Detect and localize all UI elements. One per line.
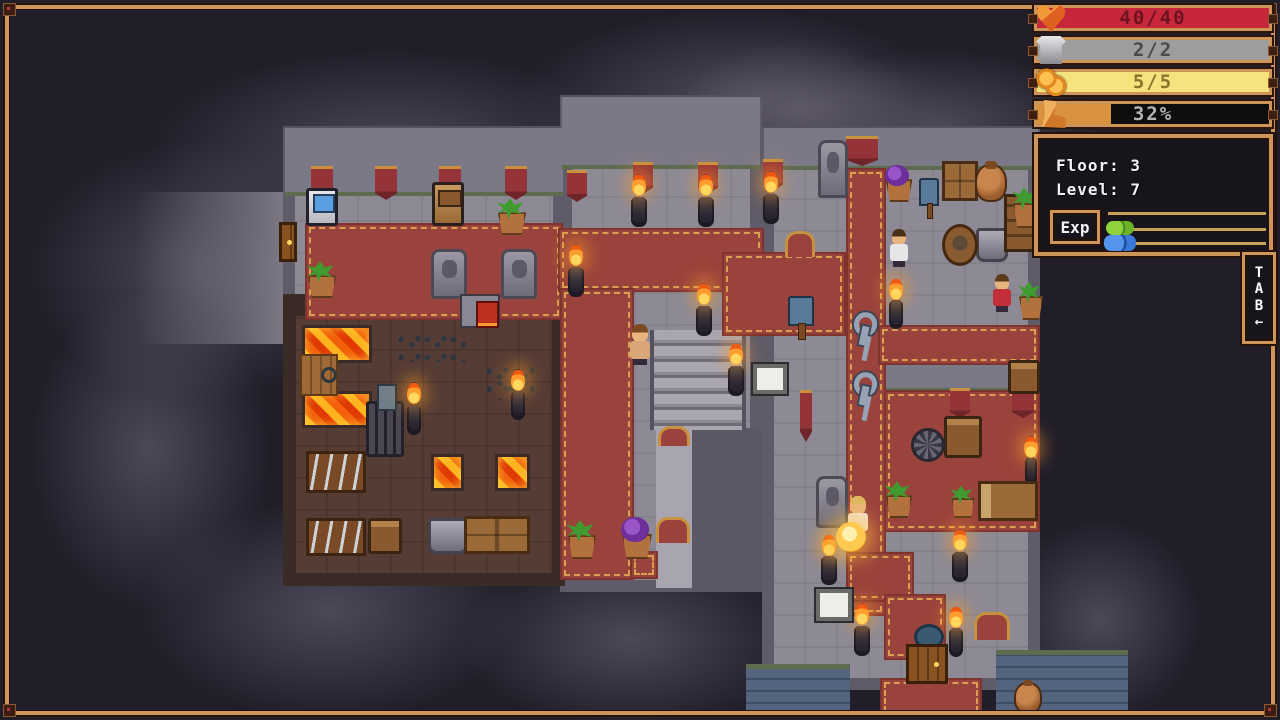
rivet — [1028, 14, 1038, 24]
armor-icon — [1036, 36, 1066, 64]
armor-bar: 2/2 — [1032, 35, 1274, 65]
exp-box: Exp — [1048, 208, 1102, 246]
rivet — [1028, 110, 1038, 120]
rivet — [1268, 78, 1278, 88]
health-bar: 40/40 — [1032, 3, 1274, 33]
green-orbs-icon — [1106, 221, 1134, 235]
rivet — [1268, 46, 1278, 56]
floor-label: Floor: 3 — [1056, 156, 1141, 175]
tab-indicator[interactable]: T A B ← — [1240, 250, 1278, 346]
stamina-value: 32% — [1037, 104, 1269, 124]
rivet — [1268, 110, 1278, 120]
game-screen: 40/402/25/532% Floor: 3 Level: 7 Exp T A… — [0, 0, 1280, 720]
blue-orbs-icon — [1104, 235, 1136, 251]
exp-label: Exp — [1061, 218, 1090, 237]
tab-letter: T — [1255, 266, 1263, 281]
armor-value: 2/2 — [1037, 40, 1269, 60]
stamina-bar: 32% — [1032, 99, 1274, 129]
tab-letter: A — [1255, 282, 1263, 297]
rivet — [1028, 46, 1038, 56]
tab-arrow-icon: ← — [1255, 315, 1263, 330]
health-value: 40/40 — [1037, 8, 1269, 28]
coins-icon — [1036, 68, 1066, 96]
coins-value: 5/5 — [1037, 72, 1269, 92]
coins-bar: 5/5 — [1032, 67, 1274, 97]
tab-letter: B — [1255, 299, 1263, 314]
exp-line — [1108, 212, 1266, 215]
level-label: Level: 7 — [1056, 180, 1141, 199]
info-panel: Floor: 3 Level: 7 Exp — [1032, 132, 1275, 258]
hud: 40/402/25/532% Floor: 3 Level: 7 Exp T A… — [0, 0, 1280, 720]
rivet — [1268, 14, 1278, 24]
